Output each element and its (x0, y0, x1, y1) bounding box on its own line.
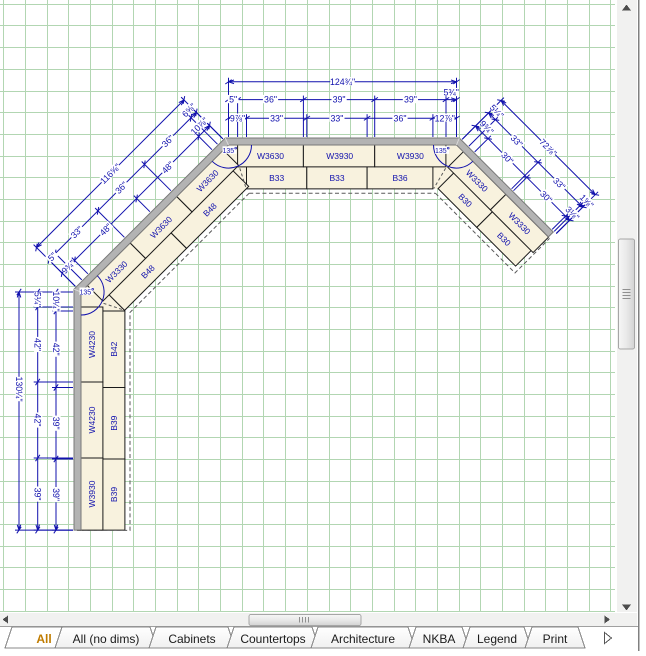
svg-text:39": 39" (51, 417, 61, 430)
svg-text:33": 33" (330, 113, 343, 123)
svg-text:NKBA: NKBA (423, 632, 456, 646)
svg-text:42": 42" (33, 414, 43, 427)
svg-text:36": 36" (264, 95, 277, 105)
svg-text:W3930: W3930 (87, 480, 97, 507)
svg-text:5": 5" (229, 95, 237, 105)
svg-text:39": 39" (51, 488, 61, 501)
svg-text:5¼": 5¼" (33, 292, 43, 307)
svg-text:33": 33" (270, 113, 283, 123)
svg-text:124¾": 124¾" (330, 77, 355, 87)
svg-text:39": 39" (333, 95, 346, 105)
svg-text:39": 39" (404, 95, 417, 105)
svg-text:W3630: W3630 (257, 151, 284, 161)
svg-text:130¼": 130¼" (14, 376, 24, 401)
svg-text:B39: B39 (109, 415, 119, 430)
svg-text:39": 39" (33, 488, 43, 501)
svg-text:135: 135 (80, 289, 92, 296)
svg-text:Legend: Legend (477, 632, 517, 646)
svg-text:135: 135 (223, 148, 235, 155)
svg-text:W3930: W3930 (397, 151, 424, 161)
svg-text:Cabinets: Cabinets (168, 632, 215, 646)
svg-text:Print: Print (543, 632, 568, 646)
svg-text:B36: B36 (392, 173, 407, 183)
svg-text:All: All (36, 632, 51, 646)
svg-text:W3930: W3930 (326, 151, 353, 161)
svg-text:W4230: W4230 (87, 331, 97, 358)
svg-text:W4230: W4230 (87, 406, 97, 433)
svg-text:B39: B39 (109, 487, 119, 502)
svg-text:42": 42" (33, 338, 43, 351)
svg-text:36": 36" (394, 113, 407, 123)
svg-text:135: 135 (435, 148, 447, 155)
svg-text:10¼": 10¼" (51, 291, 61, 311)
svg-text:5¾": 5¾" (444, 88, 459, 98)
svg-text:B33: B33 (329, 173, 344, 183)
svg-text:All (no dims): All (no dims) (73, 632, 140, 646)
svg-text:9⅞": 9⅞" (230, 113, 245, 123)
svg-text:B42: B42 (109, 341, 119, 356)
svg-text:B33: B33 (269, 173, 284, 183)
svg-text:Countertops: Countertops (240, 632, 305, 646)
svg-text:12⅞": 12⅞" (435, 113, 455, 123)
svg-text:42": 42" (51, 343, 61, 356)
svg-text:Architecture: Architecture (331, 632, 395, 646)
